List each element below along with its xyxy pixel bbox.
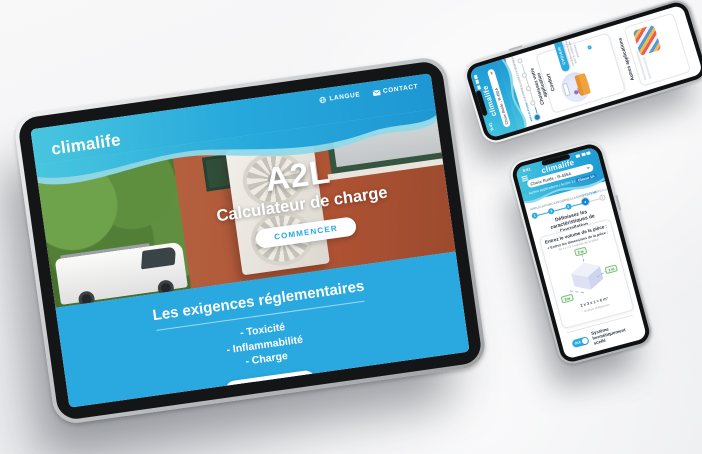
volume-card: Entrez le volume de la pièce : + Entrez … [539,218,635,329]
tablet-screen: climalife LANGUE [30,73,469,407]
step-dot[interactable] [516,58,522,64]
step-dot[interactable] [521,72,527,78]
step-dot[interactable]: 3 [564,203,571,210]
room-cube [569,259,605,294]
mail-icon [372,89,381,96]
length-input[interactable]: 3 m [561,294,574,304]
info-icon[interactable]: i [587,45,592,50]
step-dot[interactable] [525,86,531,92]
step-dot[interactable] [534,114,540,120]
marketing-scene: climalife LANGUE [0,0,702,454]
step-dot[interactable] [529,100,535,106]
sealed-system-toggle[interactable]: OUI [571,336,589,348]
height-input[interactable]: 2 m [574,247,587,257]
toggle-knob [581,337,588,344]
step-dot[interactable]: 5 [599,193,606,200]
step-dot[interactable]: 1 [531,212,538,219]
tablet-frame: climalife LANGUE [12,55,487,426]
van-windshield [141,246,176,269]
confort-illustration [556,68,595,106]
confort-card: Confort CHOISIR Conditionnement d'air po… [535,32,626,114]
chevron-down-icon [586,167,590,170]
dimension-line [581,254,584,262]
tablet-device: climalife LANGUE [12,55,487,426]
globe-icon [319,96,327,104]
step-dot[interactable]: 4 [581,197,590,206]
width-input[interactable]: 1 m [605,264,618,274]
tablet-bezel: climalife LANGUE [17,60,483,422]
chevron-down-icon [490,72,493,76]
toggle-value: OUI [574,340,581,345]
step-dot[interactable]: 2 [548,207,555,214]
